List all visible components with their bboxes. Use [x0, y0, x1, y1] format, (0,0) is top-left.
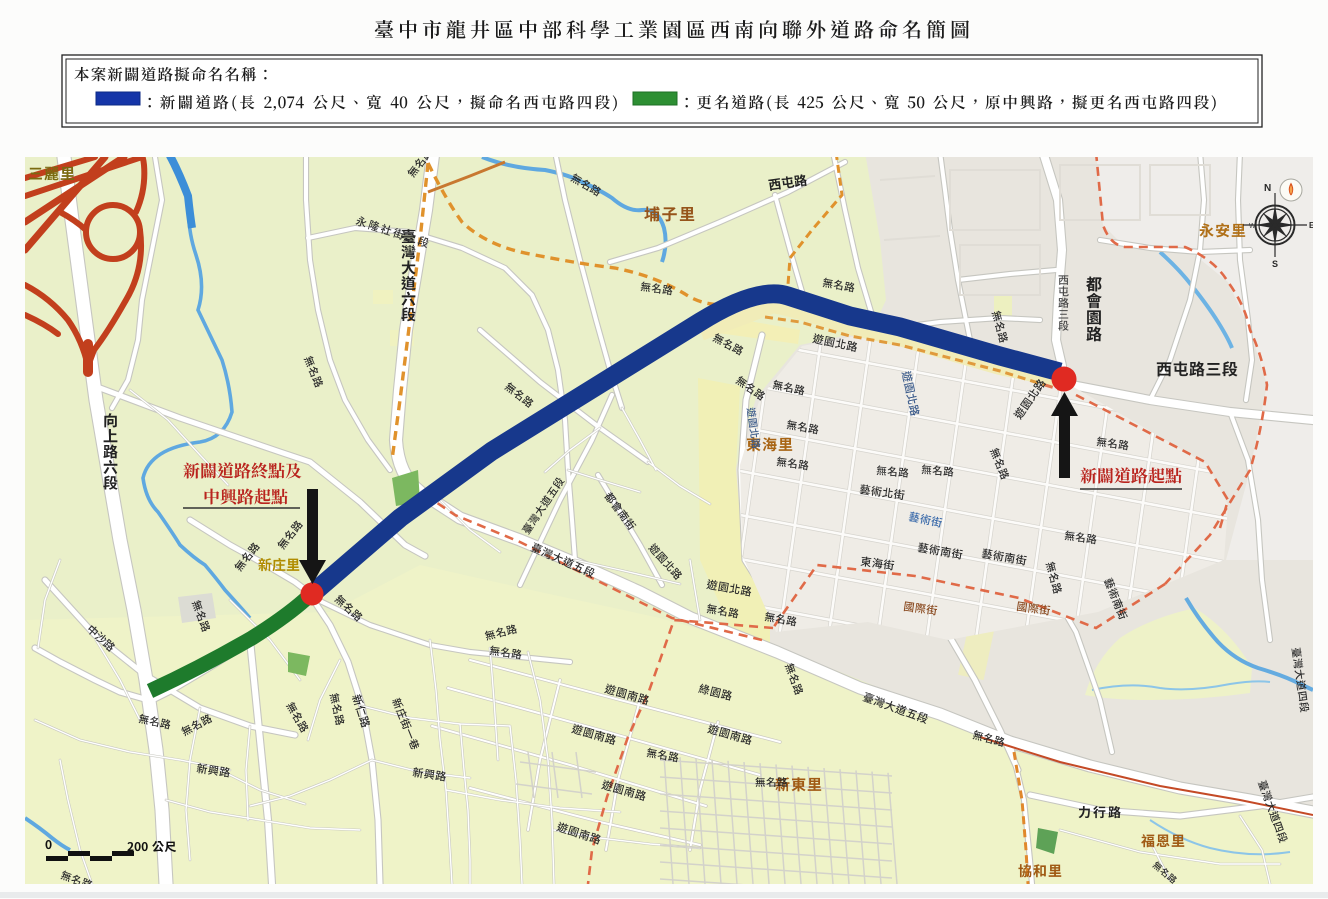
svg-text:N: N	[1264, 183, 1271, 194]
svg-text:S: S	[1272, 259, 1278, 269]
